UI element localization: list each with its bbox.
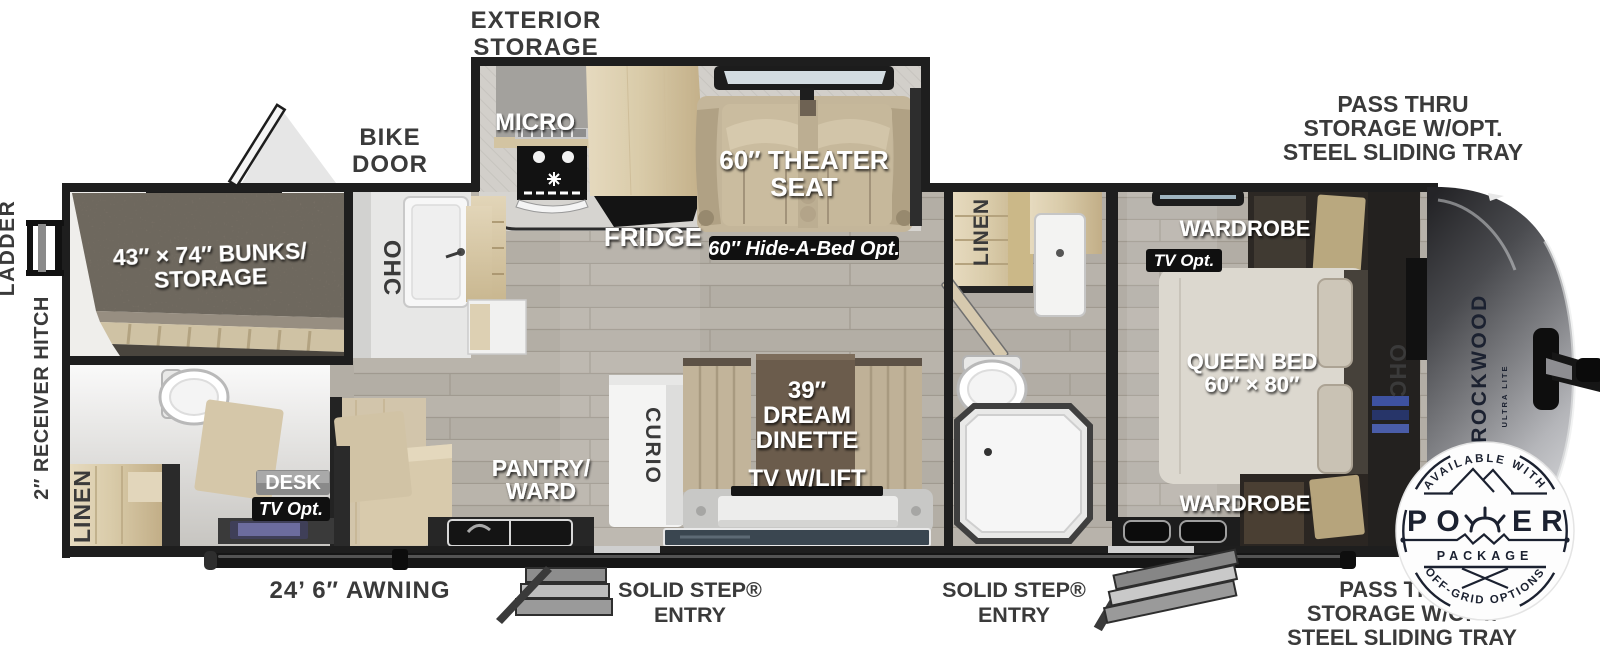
svg-text:DESK: DESK xyxy=(265,472,321,494)
svg-text:WARD: WARD xyxy=(506,478,576,504)
svg-text:OHC: OHC xyxy=(378,240,405,296)
svg-text:ENTRY: ENTRY xyxy=(978,603,1050,627)
svg-text:TV W/LIFT: TV W/LIFT xyxy=(748,465,866,492)
svg-text:STORAGE W/OPT.: STORAGE W/OPT. xyxy=(1304,115,1503,141)
svg-text:STORAGE: STORAGE xyxy=(153,263,267,293)
svg-text:ROCKWOOD: ROCKWOOD xyxy=(1468,293,1491,443)
svg-text:O: O xyxy=(1436,505,1459,538)
svg-text:STEEL SLIDING TRAY: STEEL SLIDING TRAY xyxy=(1283,139,1523,165)
svg-text:STEEL SLIDING TRAY: STEEL SLIDING TRAY xyxy=(1287,625,1517,647)
svg-text:E: E xyxy=(1512,505,1532,538)
svg-text:STORAGE: STORAGE xyxy=(473,34,598,61)
svg-text:SOLID STEP®: SOLID STEP® xyxy=(618,578,762,602)
svg-text:FRIDGE: FRIDGE xyxy=(604,222,702,252)
svg-text:LINEN: LINEN xyxy=(970,198,993,266)
svg-text:CURIO: CURIO xyxy=(641,407,664,485)
svg-text:PASS THRU: PASS THRU xyxy=(1337,91,1468,117)
svg-text:TV Opt.: TV Opt. xyxy=(1154,251,1214,270)
svg-text:60″ THEATER: 60″ THEATER xyxy=(719,145,889,175)
svg-text:60″ Hide-A-Bed Opt.: 60″ Hide-A-Bed Opt. xyxy=(708,238,900,260)
svg-text:WARDROBE: WARDROBE xyxy=(1180,216,1311,241)
svg-text:WARDROBE: WARDROBE xyxy=(1180,491,1311,516)
svg-text:MICRO: MICRO xyxy=(495,109,575,136)
svg-text:QUEEN BED: QUEEN BED xyxy=(1187,349,1318,374)
svg-text:R: R xyxy=(1541,505,1563,538)
svg-text:LADDER: LADDER xyxy=(0,200,19,297)
svg-text:2″ RECEIVER HITCH: 2″ RECEIVER HITCH xyxy=(31,296,53,500)
svg-text:60″ × 80″: 60″ × 80″ xyxy=(1204,372,1300,397)
svg-text:LINEN: LINEN xyxy=(69,469,95,543)
svg-text:SEAT: SEAT xyxy=(770,172,838,202)
svg-text:DOOR: DOOR xyxy=(352,151,428,178)
svg-text:39″: 39″ xyxy=(788,377,827,404)
svg-text:PACKAGE: PACKAGE xyxy=(1437,549,1534,563)
svg-text:SOLID STEP®: SOLID STEP® xyxy=(942,578,1086,602)
svg-text:ULTRA LITE: ULTRA LITE xyxy=(1500,365,1509,428)
svg-text:TV Opt.: TV Opt. xyxy=(259,499,323,519)
svg-text:24’ 6″ AWNING: 24’ 6″ AWNING xyxy=(270,577,451,604)
svg-text:P: P xyxy=(1407,505,1427,538)
svg-text:OHC: OHC xyxy=(1385,344,1411,398)
svg-text:DINETTE: DINETTE xyxy=(756,427,859,454)
svg-text:EXTERIOR: EXTERIOR xyxy=(471,7,602,34)
svg-text:ENTRY: ENTRY xyxy=(654,603,726,627)
svg-text:DREAM: DREAM xyxy=(763,402,851,429)
svg-text:BIKE: BIKE xyxy=(359,124,420,151)
